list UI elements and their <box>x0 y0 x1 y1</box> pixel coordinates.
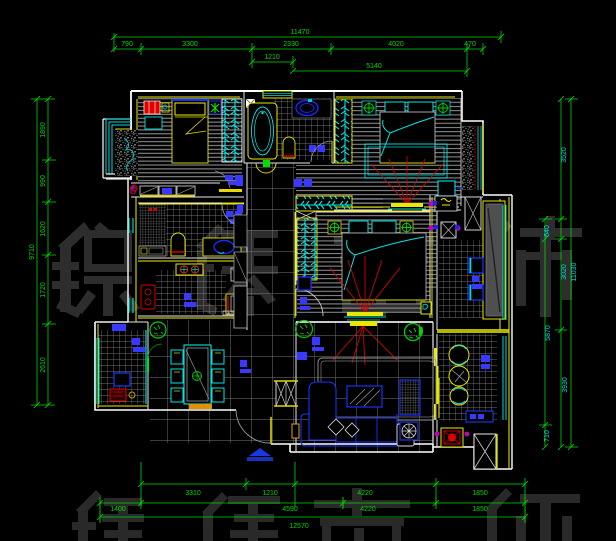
svg-text:1850: 1850 <box>472 506 488 513</box>
svg-text:5870: 5870 <box>545 325 552 341</box>
svg-text:1210: 1210 <box>264 54 280 61</box>
svg-text:2330: 2330 <box>283 41 299 48</box>
svg-text:4220: 4220 <box>357 490 373 497</box>
svg-text:11030: 11030 <box>571 262 578 281</box>
svg-text:790: 790 <box>121 41 133 48</box>
svg-text:3310: 3310 <box>185 490 201 497</box>
svg-text:1890: 1890 <box>40 122 47 138</box>
svg-text:1720: 1720 <box>40 282 47 298</box>
svg-text:4590: 4590 <box>282 506 298 513</box>
svg-text:470: 470 <box>464 41 476 48</box>
svg-text:3930: 3930 <box>562 377 569 393</box>
svg-text:4020: 4020 <box>388 41 404 48</box>
svg-text:990: 990 <box>40 175 47 187</box>
svg-text:3020: 3020 <box>561 264 568 280</box>
svg-text:4220: 4220 <box>360 506 376 513</box>
svg-text:1400: 1400 <box>110 506 126 513</box>
svg-text:3520: 3520 <box>561 147 568 163</box>
svg-text:640: 640 <box>544 225 551 237</box>
svg-text:1210: 1210 <box>262 490 278 497</box>
svg-text:11470: 11470 <box>291 29 310 36</box>
svg-text:12570: 12570 <box>289 523 309 530</box>
svg-text:710: 710 <box>544 430 551 442</box>
svg-text:1620: 1620 <box>40 221 47 237</box>
svg-text:5140: 5140 <box>366 63 382 70</box>
svg-text:3300: 3300 <box>182 41 198 48</box>
svg-text:2610: 2610 <box>40 357 47 373</box>
svg-text:9710: 9710 <box>29 244 36 260</box>
svg-text:1850: 1850 <box>472 490 488 497</box>
